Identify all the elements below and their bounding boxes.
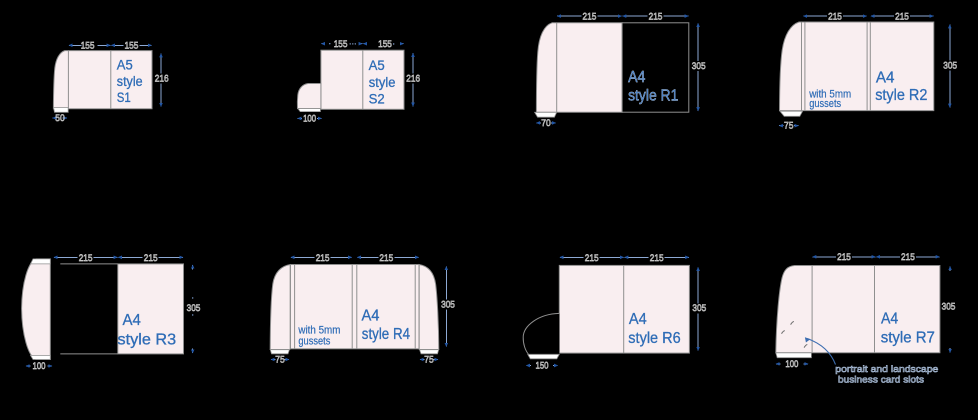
svg-text:155: 155 [81, 41, 95, 52]
svg-text:style R7: style R7 [881, 330, 935, 347]
svg-text:75: 75 [275, 355, 284, 366]
svg-text:305: 305 [942, 302, 956, 313]
svg-text:business card slots: business card slots [838, 374, 924, 384]
svg-text:305: 305 [187, 303, 201, 314]
svg-text:305: 305 [943, 61, 957, 72]
svg-text:style: style [117, 74, 143, 89]
svg-text:A4: A4 [123, 312, 141, 329]
svg-text:A4: A4 [362, 308, 380, 325]
svg-text:215: 215 [901, 252, 915, 263]
svg-text:A4: A4 [629, 311, 647, 328]
svg-text:100: 100 [33, 361, 46, 372]
svg-text:A5: A5 [117, 57, 133, 72]
svg-text:305: 305 [692, 303, 706, 314]
svg-text:215: 215 [79, 253, 93, 264]
svg-text:305: 305 [441, 300, 455, 311]
svg-text:216: 216 [155, 74, 169, 85]
svg-text:A5: A5 [369, 58, 385, 73]
svg-text:215: 215 [379, 253, 393, 264]
svg-text:215: 215 [649, 11, 663, 22]
svg-text:150: 150 [536, 361, 549, 372]
svg-text:style R1: style R1 [628, 88, 678, 105]
svg-text:305: 305 [692, 61, 706, 72]
svg-text:215: 215 [837, 252, 851, 263]
svg-text:155: 155 [334, 39, 348, 50]
svg-text:70: 70 [541, 118, 550, 129]
svg-text:215: 215 [895, 11, 909, 22]
svg-text:215: 215 [144, 253, 158, 264]
svg-text:100: 100 [785, 359, 798, 370]
svg-text:style R6: style R6 [628, 330, 680, 347]
svg-text:215: 215 [828, 11, 842, 22]
svg-text:50: 50 [55, 113, 64, 124]
svg-text:75: 75 [424, 355, 433, 366]
svg-text:S2: S2 [369, 91, 385, 106]
svg-text:style R3: style R3 [118, 332, 177, 349]
svg-text:75: 75 [784, 121, 793, 132]
svg-text:A4: A4 [876, 69, 895, 86]
svg-text:215: 215 [583, 11, 597, 22]
svg-text:style: style [369, 75, 396, 90]
svg-text:216: 216 [406, 74, 420, 85]
svg-text:style R2: style R2 [875, 87, 927, 104]
svg-text:215: 215 [316, 253, 330, 264]
svg-text:155: 155 [378, 39, 392, 50]
svg-text:100: 100 [303, 113, 316, 124]
svg-text:S1: S1 [117, 90, 131, 105]
svg-text:gussets: gussets [298, 336, 330, 348]
svg-text:155: 155 [125, 41, 139, 52]
svg-text:A4: A4 [628, 69, 645, 86]
svg-text:gussets: gussets [809, 98, 841, 110]
svg-text:215: 215 [650, 253, 664, 264]
svg-text:A4: A4 [881, 311, 898, 328]
svg-text:215: 215 [585, 253, 599, 264]
svg-text:style R4: style R4 [362, 326, 410, 343]
svg-text:portrait and landscape: portrait and landscape [835, 364, 938, 374]
